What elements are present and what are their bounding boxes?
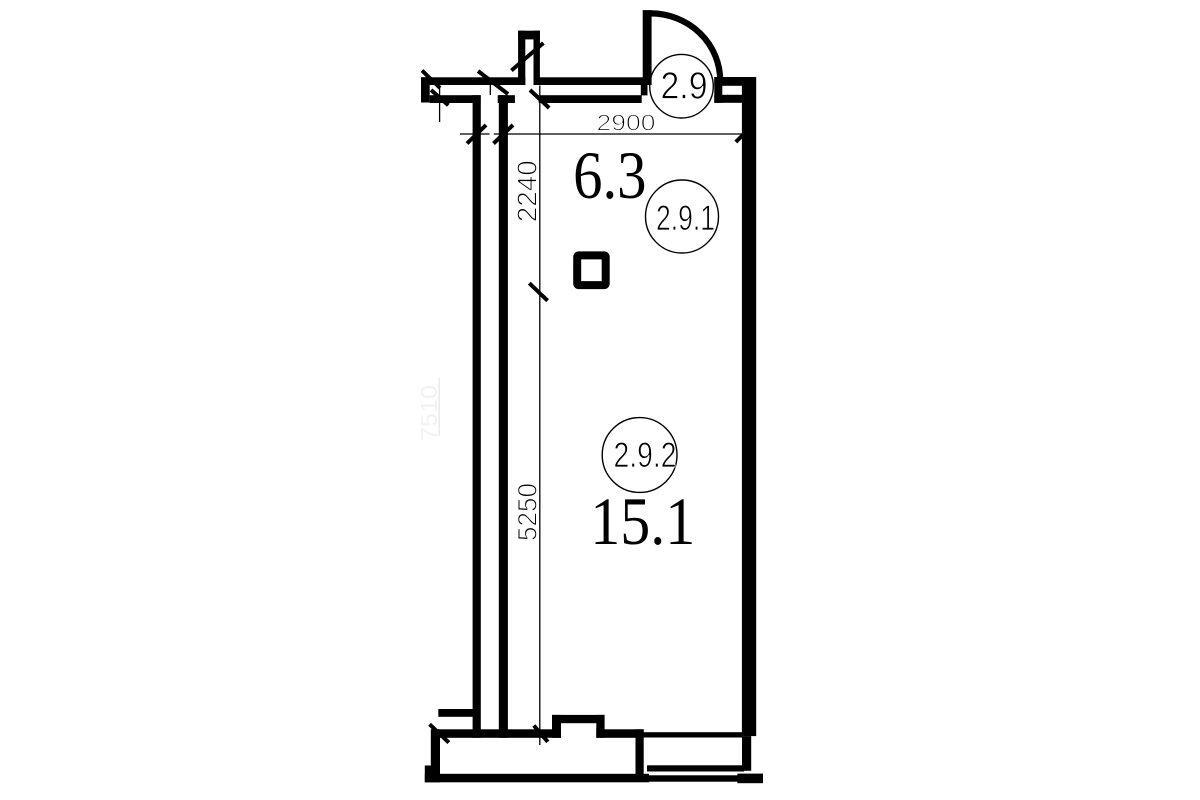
- svg-text:5250: 5250: [513, 483, 543, 541]
- svg-text:2.9.1: 2.9.1: [656, 199, 715, 238]
- svg-text:2.9: 2.9: [661, 66, 708, 108]
- svg-text:6.3: 6.3: [573, 137, 646, 213]
- svg-text:2240: 2240: [512, 160, 543, 222]
- svg-text:15.1: 15.1: [590, 483, 695, 559]
- svg-text:7510: 7510: [416, 385, 442, 441]
- svg-text:2.9.2: 2.9.2: [614, 436, 677, 475]
- svg-text:2900: 2900: [597, 109, 656, 135]
